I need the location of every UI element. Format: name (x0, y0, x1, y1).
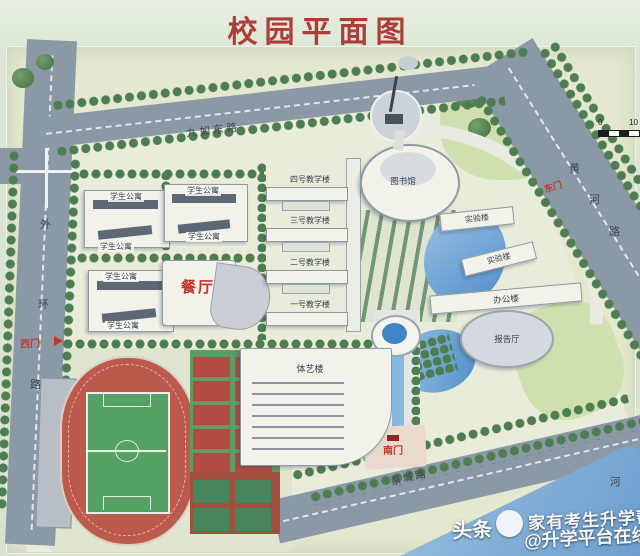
building-label: 学生公寓 (108, 192, 144, 202)
fountain-pool-water (382, 323, 407, 344)
tree-clump (36, 54, 54, 70)
road-label-east-char: 河 (589, 191, 600, 207)
teaching-building-2 (266, 270, 348, 284)
south-gate-label: 南门 (376, 443, 410, 455)
tree-clump (12, 68, 34, 88)
road-label-east-char: 路 (609, 223, 620, 239)
building-label: 四号教学楼 (278, 175, 342, 185)
tree-row (78, 168, 264, 179)
map-title: 校园平面图 (0, 7, 640, 51)
road-label-west-char: 路 (30, 376, 41, 392)
scale-bar-numbers: 0 10 (598, 118, 638, 128)
west-gate-label: 西门 (20, 334, 41, 350)
field-center-circle (115, 440, 139, 462)
building-label: 三号教学楼 (278, 216, 342, 226)
pe-arts-seating-rows (252, 382, 344, 456)
building-label: 学生公寓 (186, 232, 222, 242)
penalty-box (103, 393, 151, 407)
building-label: 学生公寓 (105, 321, 141, 331)
teaching-annex (282, 284, 330, 294)
campus-map-photo: 学生公寓 学生公寓 学生公寓 学生公寓 学生公寓 学生公寓 餐厅 四号教学楼 三… (0, 0, 640, 556)
west-gate-arrow-icon (54, 336, 63, 346)
scale-bar (598, 130, 640, 137)
watermark-brand: 头条 (451, 513, 492, 544)
building-label: 学生公寓 (98, 242, 134, 252)
building-label: 学生公寓 (103, 272, 139, 282)
teaching-corridor (346, 158, 361, 332)
building-label: 报告厅 (494, 334, 520, 344)
building-label: 办公楼 (493, 292, 519, 304)
teaching-building-4 (266, 187, 348, 201)
building-label: 二号教学楼 (278, 258, 342, 268)
monument-base (385, 114, 403, 124)
teaching-building-3 (266, 228, 348, 242)
south-gate-icon (387, 435, 399, 441)
tennis-courts (190, 472, 280, 534)
building-label: 图书馆 (381, 176, 425, 186)
lecture-hall: 报告厅 (460, 310, 554, 368)
scale-start: 0 (598, 118, 602, 128)
scale-end: 10 (629, 118, 638, 128)
dining-hall-label: 餐厅 (172, 276, 224, 296)
road-label-west-char: 环 (38, 296, 49, 312)
road-label-east-char: 黄 (569, 160, 580, 176)
building-label: 实验楼 (465, 213, 490, 225)
building-label: 一号教学楼 (278, 300, 342, 310)
teaching-annex (282, 242, 330, 252)
teaching-building-1 (266, 312, 348, 326)
teaching-annex (282, 201, 330, 211)
building-label: 实验楼 (486, 251, 512, 267)
river-label: 河 (610, 474, 621, 489)
penalty-box (103, 496, 151, 510)
upper-plaza (398, 56, 418, 70)
building-label: 体艺楼 (282, 364, 338, 374)
road-label-west-char: 外 (40, 216, 51, 232)
building-label: 学生公寓 (185, 186, 221, 196)
toutiao-logo-icon (496, 510, 523, 537)
